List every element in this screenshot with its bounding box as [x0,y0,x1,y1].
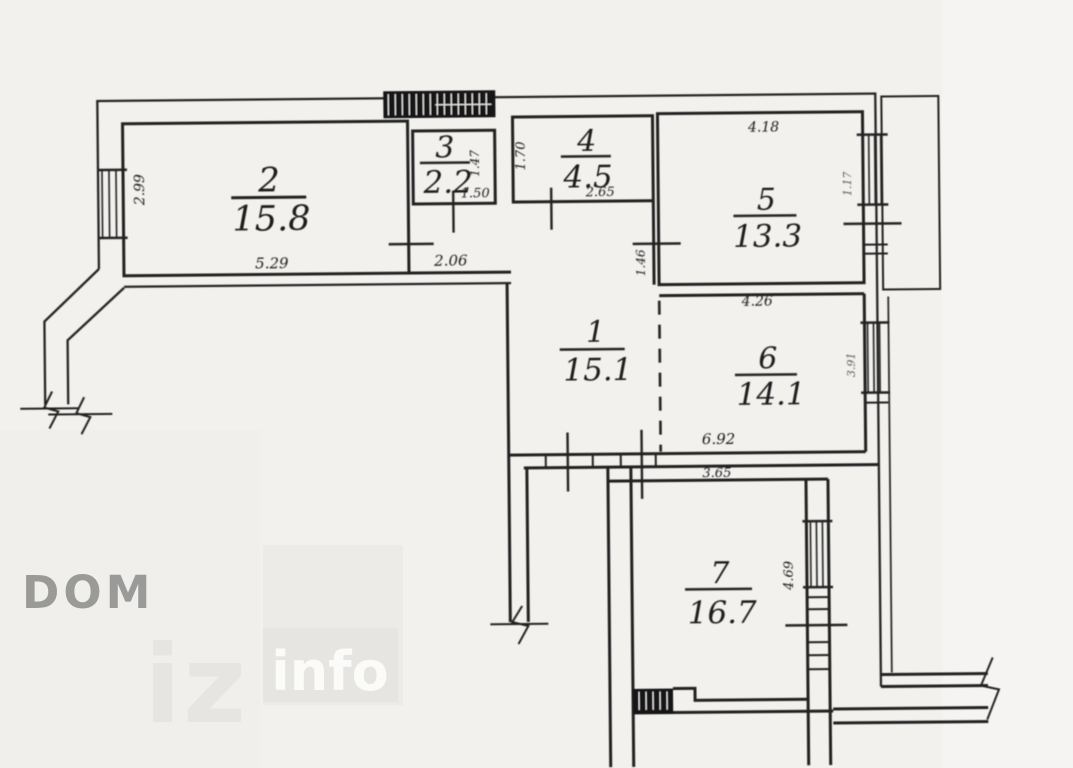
room-6-number: 6 [758,342,777,377]
floorplan-svg: iz info DOM [0,0,1073,768]
dim-room5-width: 4.18 [747,119,779,135]
dim-room7-width: 3.65 [702,466,731,481]
dim-room4-depth: 1.70 [514,141,529,170]
paper-light-band [942,0,1073,768]
dim-room5-door-wall: 1.46 [634,249,648,276]
room-5-number: 5 [757,183,776,218]
room-5-label-line [733,215,796,216]
watermark-info: info [271,640,389,703]
dim-room4-width: 2.65 [585,185,615,200]
room-6-area: 14.1 [736,376,805,413]
room-1-area: 15.1 [563,352,632,389]
room-6-label-line [735,374,797,375]
room-1-number: 1 [586,315,605,350]
room-7-label-line [685,589,752,590]
dim-hall-opening: 2.06 [433,251,468,269]
dim-room6-width: 6.92 [702,430,736,448]
room-4-number: 4 [576,124,596,159]
dim-room3-depth: 1.47 [468,150,482,177]
room-3-number: 3 [435,131,454,166]
room-7-area: 16.7 [688,595,758,632]
dim-room6-window: 3.91 [845,353,858,378]
dim-room2-depth: 2.99 [132,174,148,206]
dim-room5-window: 1.17 [841,172,854,197]
room-1-label-line [560,349,625,350]
dim-room6-top-width: 4.26 [741,294,773,310]
room-5-area: 13.3 [733,218,802,255]
room-2-number: 2 [257,160,280,200]
dim-room7-depth: 4.69 [782,561,797,591]
dim-room2-width: 5.29 [255,254,289,272]
watermark-iz: iz [144,623,248,748]
dim-room3-width: 1.50 [461,186,490,201]
room-2-label-line [231,197,306,198]
room-7-number: 7 [710,556,730,591]
room-2-area: 15.8 [232,199,310,240]
floorplan-scan-page: iz info DOM [0,0,1073,768]
watermark-dom: DOM [22,566,154,619]
